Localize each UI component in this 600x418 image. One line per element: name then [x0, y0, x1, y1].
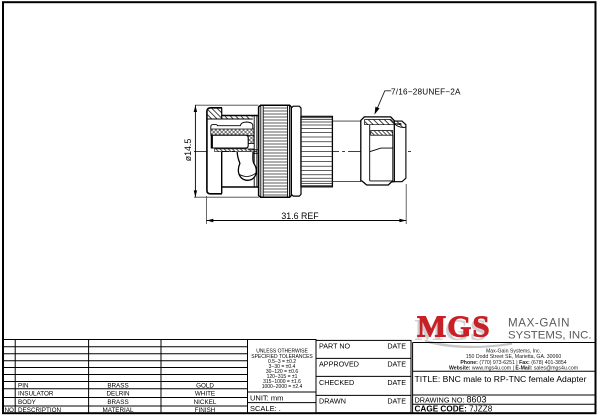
svg-text:DRAWN: DRAWN — [319, 396, 346, 405]
svg-text:DELRIN: DELRIN — [106, 391, 130, 398]
svg-text:GOLD: GOLD — [196, 382, 214, 389]
svg-text:MGS: MGS — [417, 309, 491, 344]
svg-text:BODY: BODY — [18, 399, 37, 406]
svg-text:DATE: DATE — [387, 396, 406, 405]
svg-text:UNIT: mm: UNIT: mm — [250, 393, 283, 402]
svg-text:MATERIAL: MATERIAL — [102, 407, 134, 414]
svg-text:APPROVED: APPROVED — [319, 360, 359, 369]
svg-text:INSULATOR: INSULATOR — [18, 391, 54, 398]
svg-text:MAX-GAIN: MAX-GAIN — [508, 316, 570, 329]
svg-text:31.6 REF: 31.6 REF — [281, 211, 319, 221]
svg-text:NO.: NO. — [5, 407, 16, 414]
svg-text:1000−2000 = ±2.4: 1000−2000 = ±2.4 — [262, 384, 303, 390]
svg-text:SCALE: .: SCALE: . — [250, 404, 281, 413]
svg-text:BRASS: BRASS — [107, 382, 128, 389]
svg-text:TITLE: BNC male to RP-TNC fem: TITLE: BNC male to RP-TNC female Adapter — [415, 374, 587, 384]
svg-text:CAGE CODE: 7JZZ8: CAGE CODE: 7JZZ8 — [415, 405, 493, 414]
svg-text:SYSTEMS, INC.: SYSTEMS, INC. — [508, 330, 592, 342]
svg-text:PART NO: PART NO — [319, 342, 351, 351]
svg-text:DRAWING NO: 8603: DRAWING NO: 8603 — [415, 395, 487, 405]
svg-text:ø14.5: ø14.5 — [183, 139, 193, 162]
svg-text:PIN: PIN — [18, 382, 29, 389]
svg-text:DESCRIPTION: DESCRIPTION — [18, 407, 61, 414]
svg-text:DATE: DATE — [387, 342, 406, 351]
svg-text:NICKEL: NICKEL — [194, 399, 217, 406]
svg-text:7/16−28UNEF−2A: 7/16−28UNEF−2A — [391, 88, 461, 97]
svg-text:FINISH: FINISH — [195, 407, 216, 414]
svg-text:CHECKED: CHECKED — [319, 378, 354, 387]
svg-text:DATE: DATE — [387, 378, 406, 387]
svg-text:WHITE: WHITE — [195, 391, 215, 398]
svg-text:BRASS: BRASS — [107, 399, 128, 406]
svg-text:DATE: DATE — [387, 360, 406, 369]
svg-text:Website: www.mgs4u.com | E-M: Website: www.mgs4u.com | E-Mail: sales@m… — [449, 365, 578, 371]
